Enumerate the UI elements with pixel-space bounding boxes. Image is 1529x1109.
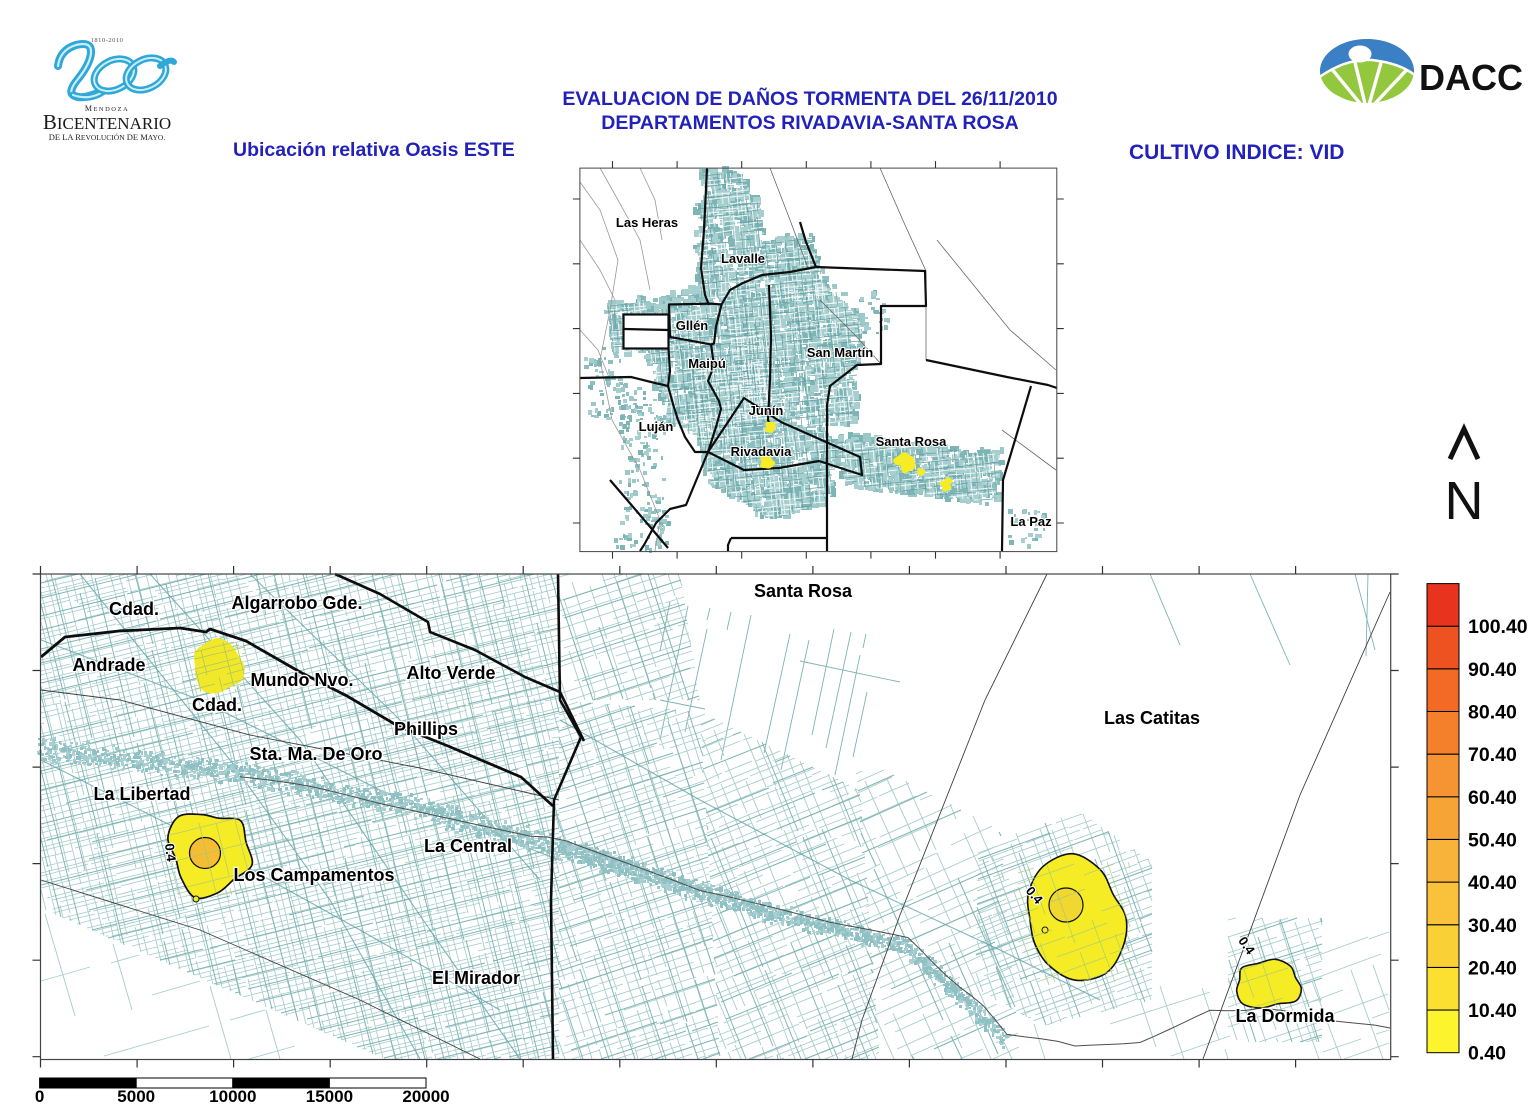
svg-text:La Paz: La Paz (1010, 514, 1052, 529)
svg-text:Sta. Ma. De Oro: Sta. Ma. De Oro (249, 744, 382, 764)
svg-text:Alto Verde: Alto Verde (406, 663, 495, 683)
svg-text:BICENTENARIO: BICENTENARIO (43, 110, 171, 134)
svg-text:70.40: 70.40 (1468, 744, 1517, 766)
svg-text:90.40: 90.40 (1468, 659, 1517, 681)
svg-text:Andrade: Andrade (72, 655, 145, 675)
svg-text:Cdad.: Cdad. (192, 695, 242, 715)
svg-text:DEPARTAMENTOS RIVADAVIA-SANTA: DEPARTAMENTOS RIVADAVIA-SANTA ROSA (601, 112, 1018, 134)
svg-text:15000: 15000 (306, 1087, 353, 1104)
svg-text:10.40: 10.40 (1468, 1000, 1517, 1022)
svg-text:Las Heras: Las Heras (616, 215, 678, 230)
svg-text:La Central: La Central (424, 836, 512, 856)
svg-text:60.40: 60.40 (1468, 787, 1517, 809)
svg-text:CULTIVO INDICE: VID: CULTIVO INDICE: VID (1129, 141, 1344, 164)
svg-text:Lavalle: Lavalle (721, 251, 765, 266)
svg-text:Ubicación relativa Oasis ESTE: Ubicación relativa Oasis ESTE (233, 139, 515, 161)
svg-text:Algarrobo Gde.: Algarrobo Gde. (231, 593, 362, 613)
svg-text:Los Campamentos: Los Campamentos (233, 865, 394, 885)
svg-text:5000: 5000 (117, 1087, 155, 1104)
svg-text:Gllén: Gllén (676, 318, 709, 333)
svg-text:DE LA REVOLUCIÓN DE MAYO.: DE LA REVOLUCIÓN DE MAYO. (49, 132, 166, 142)
svg-text:1810-2010: 1810-2010 (91, 37, 124, 44)
svg-text:La Dormida: La Dormida (1235, 1006, 1335, 1026)
svg-text:EVALUACION DE DAÑOS TORMENTA D: EVALUACION DE DAÑOS TORMENTA DEL 26/11/2… (562, 87, 1057, 110)
svg-text:La Libertad: La Libertad (93, 784, 190, 804)
svg-text:San Martín: San Martín (807, 345, 874, 360)
svg-text:50.40: 50.40 (1468, 830, 1517, 852)
svg-text:Maipú: Maipú (688, 356, 726, 371)
svg-text:Mundo Nvo.: Mundo Nvo. (251, 670, 354, 690)
svg-text:40.40: 40.40 (1468, 872, 1517, 894)
svg-text:Phillips: Phillips (394, 719, 458, 739)
svg-text:Junín: Junín (749, 403, 784, 418)
svg-text:Luján: Luján (639, 419, 674, 434)
svg-text:MENDOZA: MENDOZA (85, 104, 129, 113)
svg-text:0: 0 (35, 1087, 44, 1104)
svg-text:Rivadavia: Rivadavia (731, 444, 792, 459)
svg-text:10000: 10000 (209, 1087, 256, 1104)
svg-text:Cdad.: Cdad. (109, 599, 159, 619)
svg-text:DACC: DACC (1419, 57, 1523, 98)
svg-text:100.40: 100.40 (1468, 616, 1528, 638)
svg-text:N: N (1445, 471, 1484, 531)
svg-text:El Mirador: El Mirador (432, 968, 520, 988)
svg-text:20000: 20000 (402, 1087, 449, 1104)
svg-text:0.4: 0.4 (162, 843, 179, 864)
svg-text:80.40: 80.40 (1468, 702, 1517, 724)
svg-text:Santa Rosa: Santa Rosa (754, 581, 853, 601)
svg-text:30.40: 30.40 (1468, 915, 1517, 937)
svg-text:0.40: 0.40 (1468, 1043, 1506, 1065)
svg-text:Las Catitas: Las Catitas (1104, 708, 1200, 728)
svg-text:20.40: 20.40 (1468, 957, 1517, 979)
svg-text:Santa Rosa: Santa Rosa (876, 434, 948, 449)
